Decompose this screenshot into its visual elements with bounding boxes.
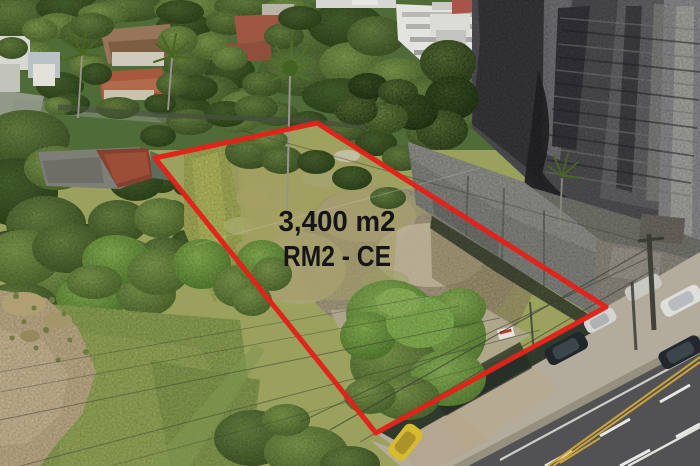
svg-text:RM2 - CE: RM2 - CE [283,241,391,273]
svg-text:3,400 m2: 3,400 m2 [279,206,396,238]
